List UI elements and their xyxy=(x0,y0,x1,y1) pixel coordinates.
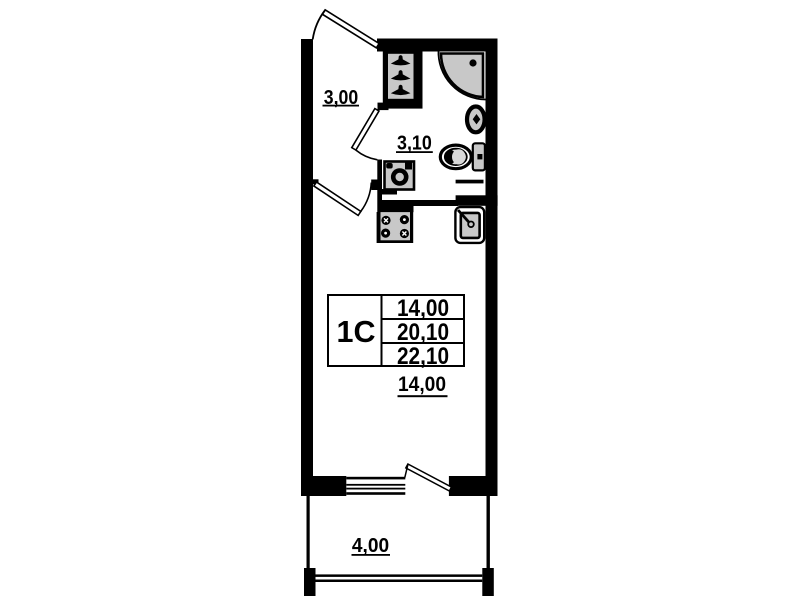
svg-text:1C: 1C xyxy=(337,314,376,349)
svg-text:22,10: 22,10 xyxy=(397,343,449,370)
svg-text:4,00: 4,00 xyxy=(352,534,389,557)
svg-text:14,00: 14,00 xyxy=(397,295,449,322)
svg-text:3,10: 3,10 xyxy=(397,132,432,155)
svg-text:20,10: 20,10 xyxy=(397,319,449,346)
svg-text:14,00: 14,00 xyxy=(398,372,446,396)
